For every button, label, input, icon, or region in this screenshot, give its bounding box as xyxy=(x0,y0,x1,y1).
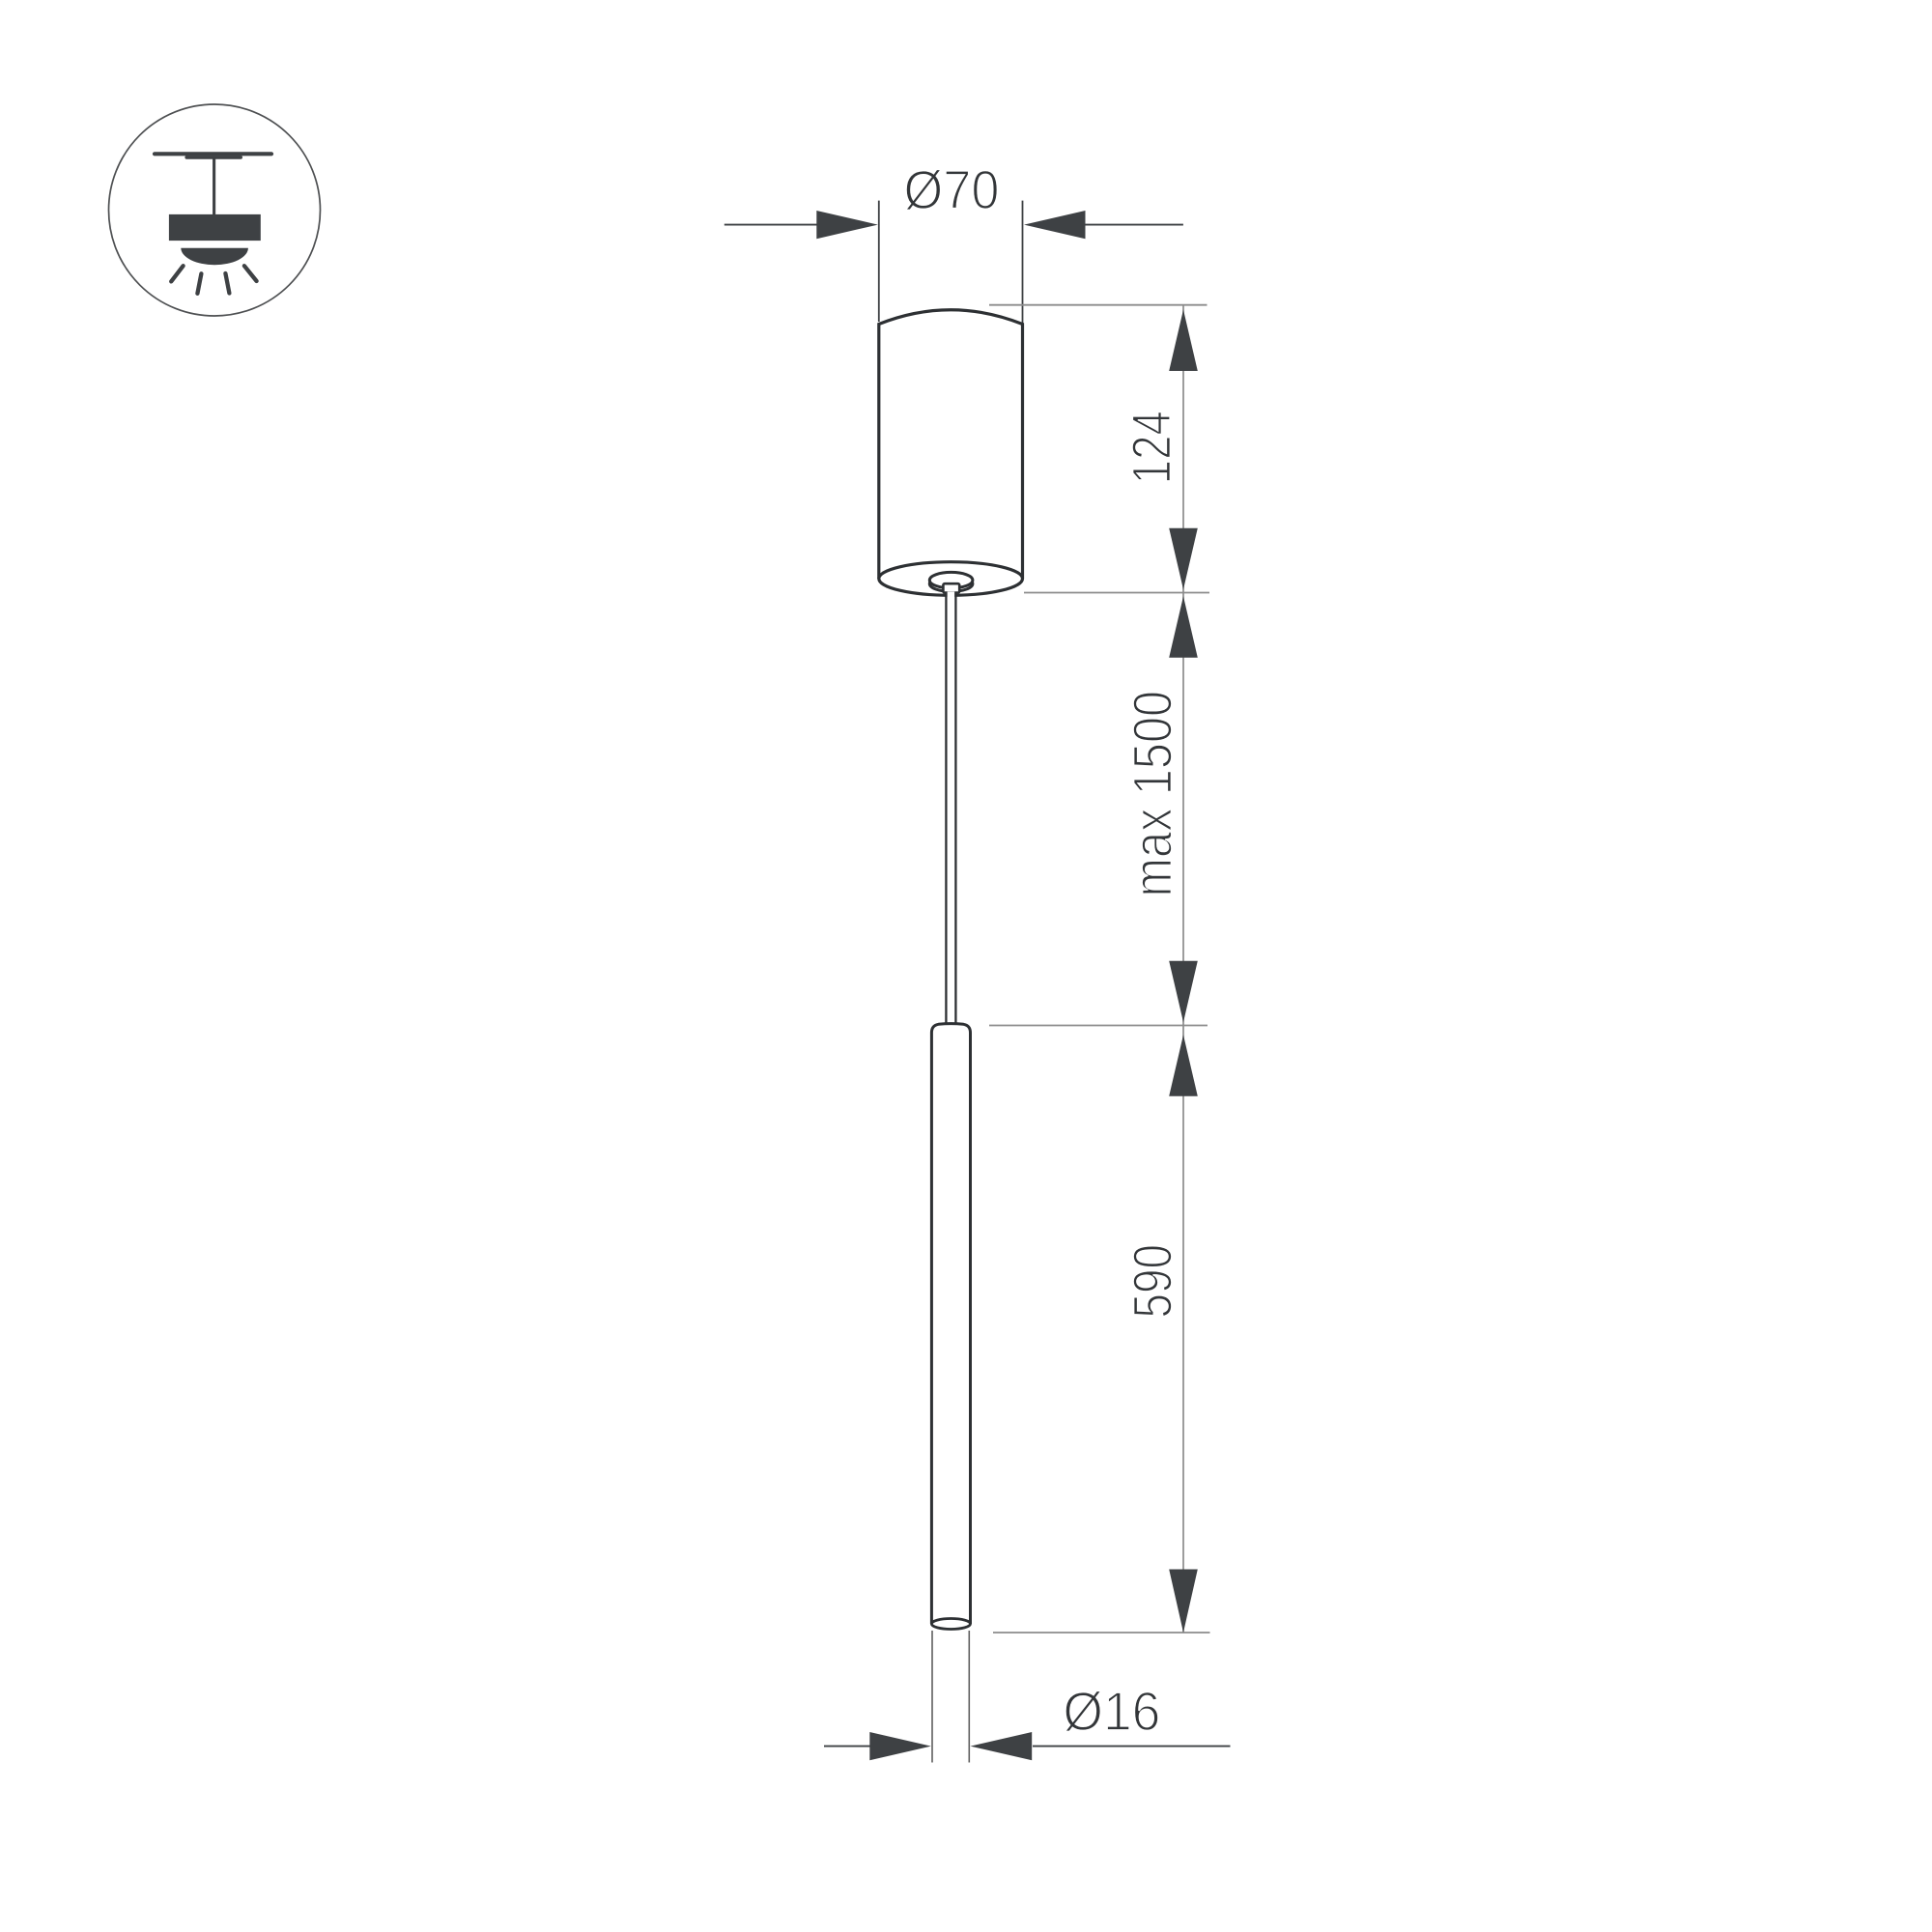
svg-text:Ø16: Ø16 xyxy=(1063,1681,1160,1742)
svg-text:Ø70: Ø70 xyxy=(904,159,1000,220)
svg-text:max 1500: max 1500 xyxy=(1122,691,1183,897)
svg-text:590: 590 xyxy=(1122,1244,1183,1319)
svg-text:124: 124 xyxy=(1122,411,1182,484)
